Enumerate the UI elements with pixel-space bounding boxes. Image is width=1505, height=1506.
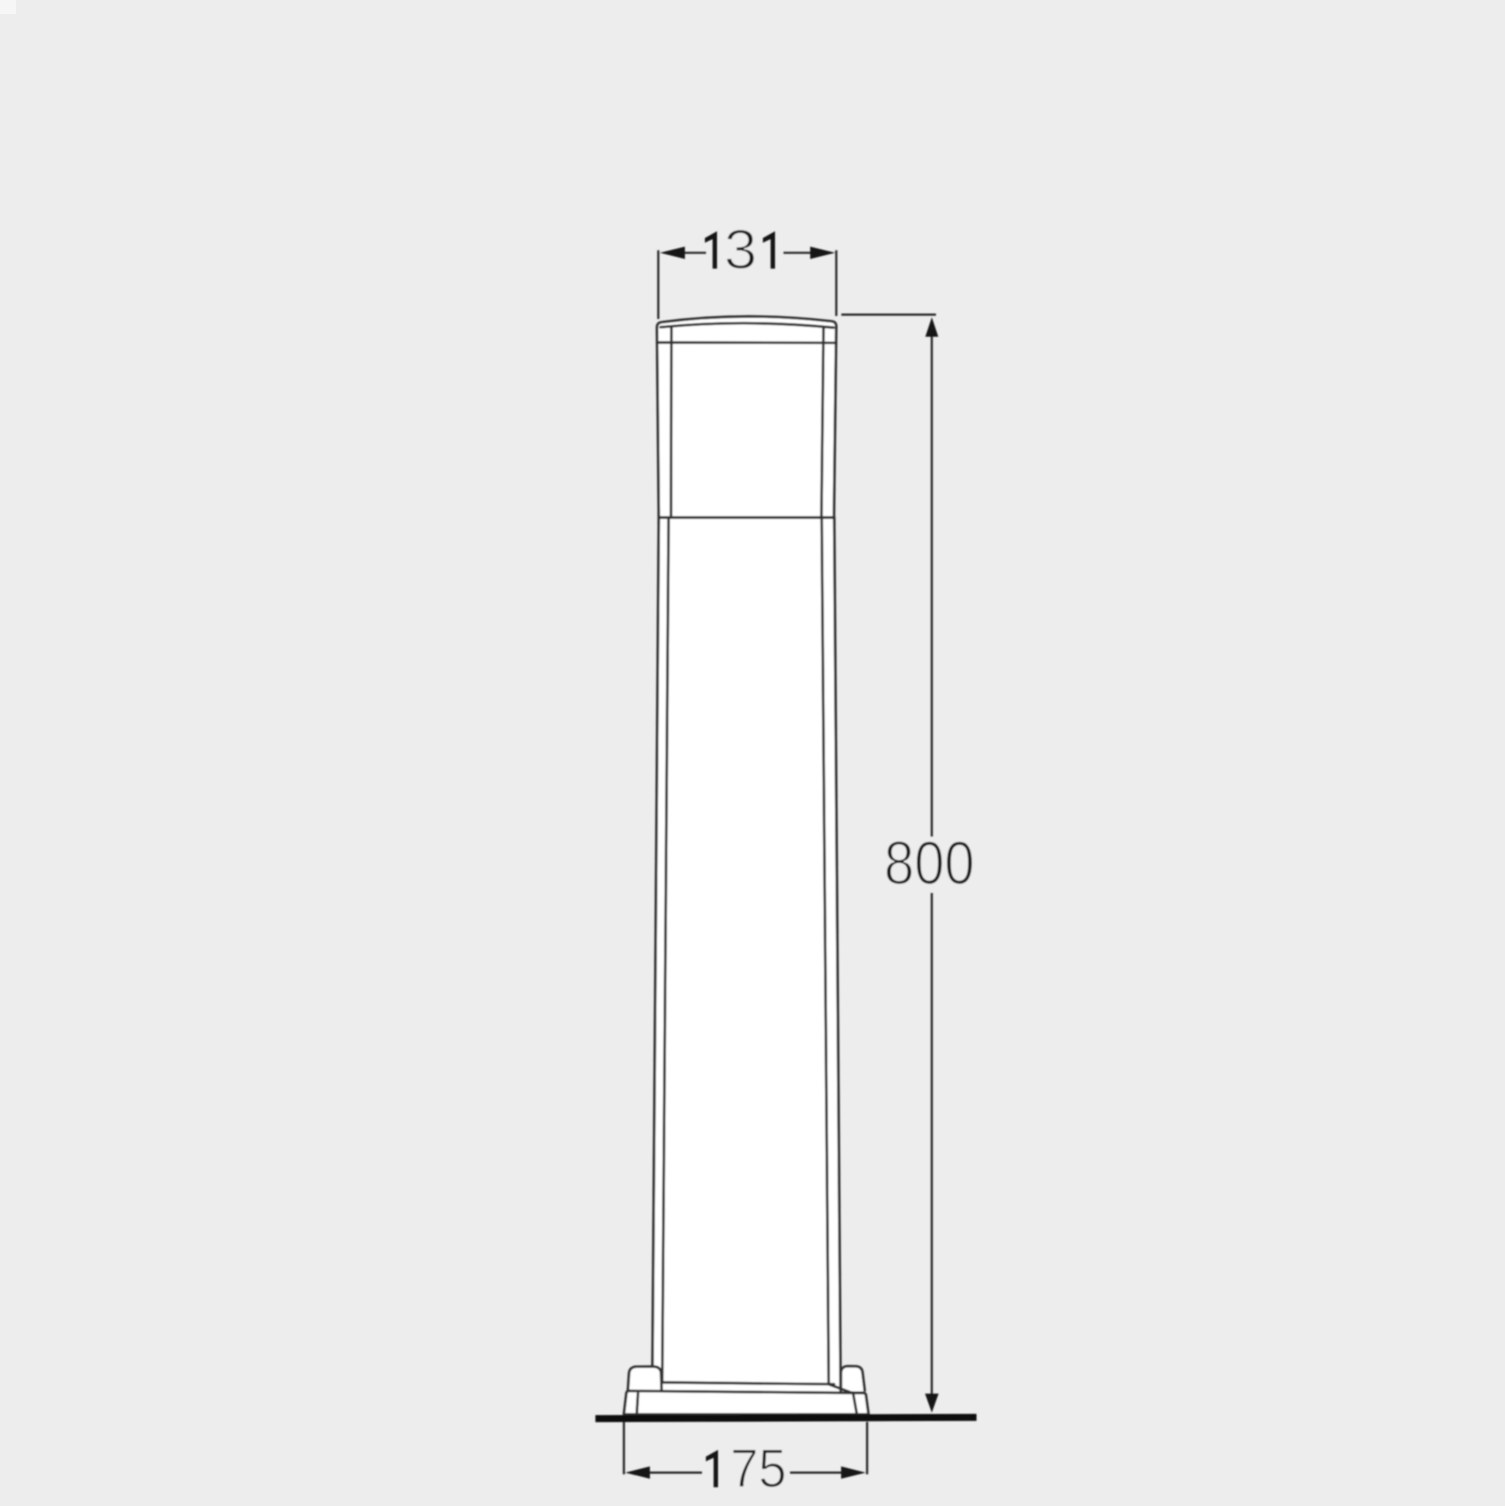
svg-text:75: 75 <box>730 1438 786 1499</box>
svg-text:3: 3 <box>724 219 757 281</box>
svg-text:800: 800 <box>884 830 975 898</box>
